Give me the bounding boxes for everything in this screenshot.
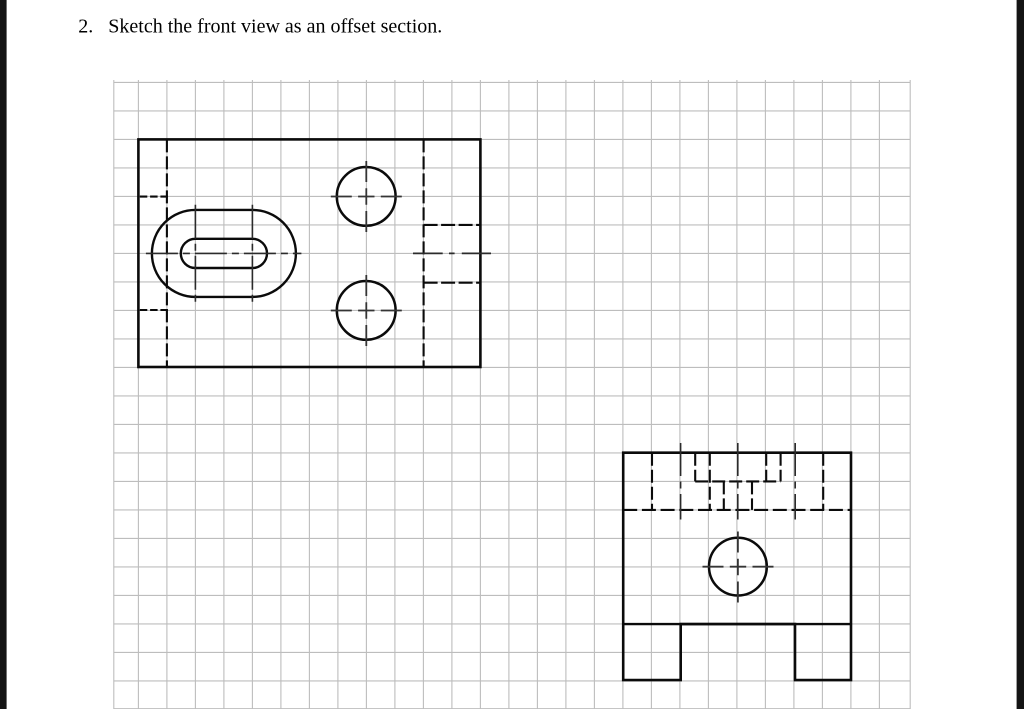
svg-text:2.: 2. [78,16,93,38]
svg-text:Sketch the front view as an of: Sketch the front view as an offset secti… [108,16,442,38]
